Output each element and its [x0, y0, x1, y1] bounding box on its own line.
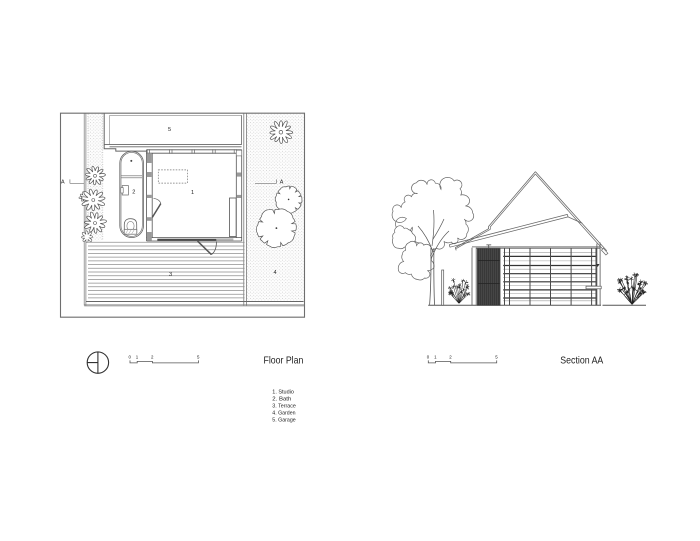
svg-text:5. Garage: 5. Garage [272, 418, 295, 424]
svg-text:1. Studio: 1. Studio [272, 390, 294, 396]
svg-text:1: 1 [191, 190, 194, 196]
svg-text:2. Bath: 2. Bath [272, 397, 291, 403]
svg-text:5: 5 [168, 127, 171, 133]
svg-text:Section AA: Section AA [560, 356, 603, 367]
svg-text:4. Garden: 4. Garden [272, 411, 295, 417]
svg-text:3: 3 [169, 272, 172, 278]
svg-text:A: A [280, 180, 284, 186]
svg-text:3. Terrace: 3. Terrace [272, 404, 296, 410]
svg-text:Floor Plan: Floor Plan [264, 356, 304, 367]
svg-text:4: 4 [274, 270, 277, 276]
svg-text:2: 2 [132, 190, 135, 196]
svg-text:A: A [61, 180, 65, 186]
